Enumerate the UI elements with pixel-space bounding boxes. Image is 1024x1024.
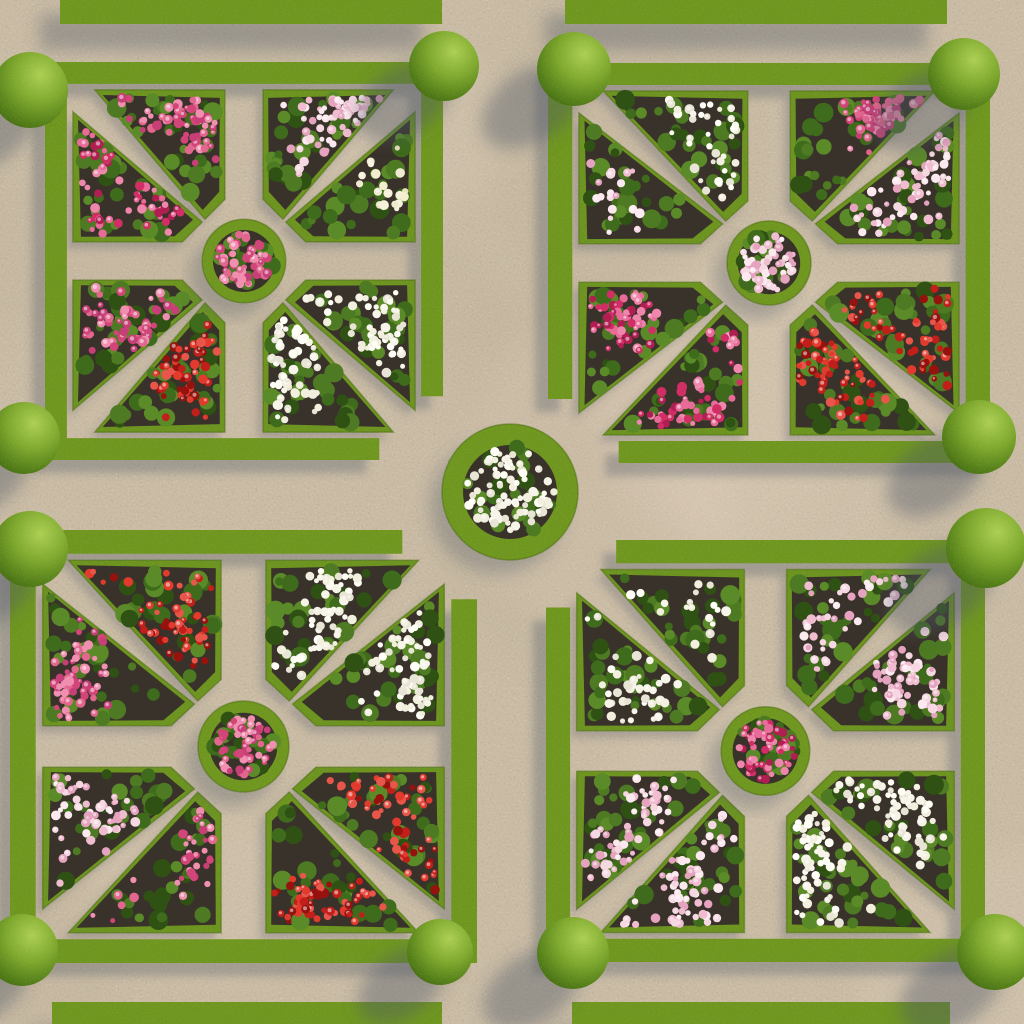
hedge-strip — [565, 0, 947, 24]
hedge-strip — [572, 1002, 950, 1024]
topiary-ball — [407, 919, 473, 985]
topiary-ball — [928, 38, 1000, 110]
topiary-ball — [537, 917, 609, 989]
topiary-ball — [409, 31, 479, 101]
topiary-ball — [942, 400, 1016, 474]
parterre-garden-svg — [0, 0, 1024, 1024]
topiary-ball — [537, 32, 611, 106]
hedge-strip — [60, 0, 442, 24]
topiary-ball — [946, 508, 1024, 588]
garden-aerial-photo: Aerial top-down view of a formal parterr… — [0, 0, 1024, 1024]
